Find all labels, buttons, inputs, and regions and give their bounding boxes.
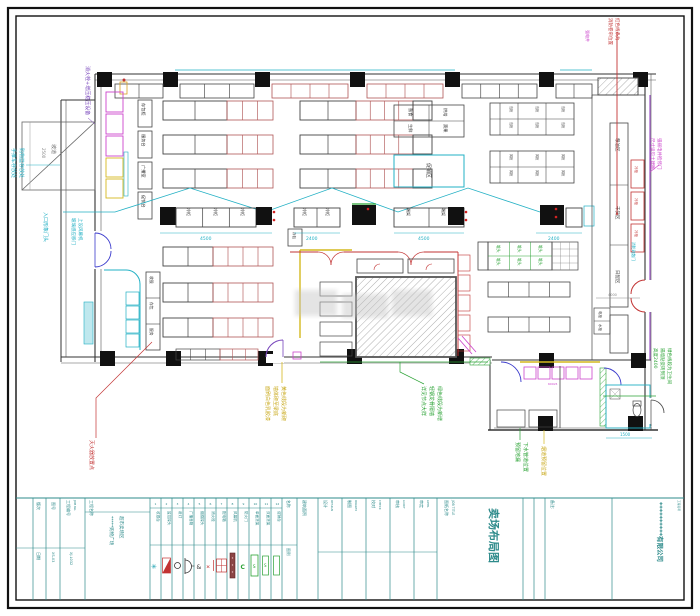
legend-headers-2: 射灯 [178, 511, 183, 519]
tb-sign-audit-en: AUDIT [402, 500, 406, 509]
island-label: 风柜 [535, 154, 540, 161]
utility-label: 水柜 [598, 324, 603, 332]
door-gap [649, 398, 657, 424]
tb-sign-drawn-en: DRAWN [354, 500, 358, 511]
column [97, 72, 112, 87]
door-gap [266, 354, 284, 363]
annotation-entry: 入口形象门头 [42, 212, 49, 242]
legend-symbol-star: ✳ [151, 563, 157, 571]
tb-sign-check-en: CHECK [378, 500, 382, 510]
freezer-end [256, 207, 272, 225]
tb-field-notes-sym: 图例 [286, 548, 291, 556]
island-label: 风柜 [509, 170, 514, 177]
annotation-wc-1: 绿色线段为卫生间 [666, 348, 673, 384]
dim-text: 4000 [608, 293, 617, 297]
legend-symbol-bar-dot [232, 557, 233, 558]
tb-field-jobno-en: JOB No. [73, 499, 77, 511]
annotation-green-1: 绿色线段为新增 [436, 386, 443, 421]
wall-cooler-label: 冷柜 [634, 198, 639, 206]
annotation-green-3: 详见节点大样 [420, 386, 427, 416]
annotation-shaft-2: 尺寸详见土建图 [649, 138, 656, 170]
freezer-label: 端架 [441, 208, 447, 216]
island-label: 风柜 [561, 170, 566, 177]
freezer-label: 端架 [406, 208, 412, 216]
pallet-label: 堆头 [496, 245, 501, 253]
tb-remark-label: 备注: [550, 500, 556, 509]
service-box-label: 促销台 [140, 195, 147, 208]
watermark-blob [295, 290, 337, 316]
door-gap [91, 231, 104, 269]
dim-text: 2400 [548, 236, 560, 242]
legend-symbol-c: C [241, 564, 246, 571]
tb-company: **********有限公司 [656, 502, 665, 562]
legend-headers-5: 消火栓 [211, 511, 216, 522]
watermark-blob [342, 294, 388, 318]
annotation-shaft-1: 强弱电井检修门 [656, 138, 663, 170]
corridor-shelf-label: 日配区 [614, 270, 620, 284]
tb-field-dwgno: 图号 [51, 502, 57, 510]
annotation-yellow-3: 面刷白色乳胶漆 [264, 386, 271, 421]
freezer-label: 冷柜 [240, 208, 246, 216]
legend-index-0: 1 [155, 502, 157, 506]
island-label: 岛柜 [561, 106, 566, 113]
island-label: 风柜 [561, 154, 566, 161]
freezer-label: 冷柜 [302, 208, 308, 216]
island-label: 岛柜 [535, 106, 540, 113]
floor-plan-canvas: 坡道2500存包柜服务台广播室促销台冷柜冷柜冷柜冷柜冷柜端架端架存包450024… [0, 0, 700, 616]
annotation-shutter-2: 消防卷帘位置 [607, 18, 614, 45]
legend-symbol-bar-dot [232, 564, 233, 565]
freezer-end [448, 207, 464, 225]
legend-index-11: 12 [276, 502, 280, 506]
tb-company-tag: 工程名称 [677, 500, 681, 511]
column [628, 416, 643, 431]
tb-value-project-1: *****购物广场 [108, 516, 115, 546]
column [255, 72, 270, 87]
annotation-green-2: 轻钢龙骨隔墙 [428, 386, 435, 416]
utility-label: 电柜 [598, 311, 603, 319]
legend-index-1: 2 [166, 502, 168, 506]
tb-field-notes-name: 名称 [286, 500, 291, 508]
freezer-black [352, 205, 376, 225]
legend-symbol-bar-dot [232, 571, 233, 572]
checkout-label: 存包 [149, 302, 154, 310]
freezer-label: 冷柜 [186, 208, 192, 216]
promo-zone-label: 促销区 [425, 163, 432, 178]
column [166, 351, 181, 366]
legend-index-5: 6 [210, 502, 212, 506]
legend-symbol-x: ✕ [206, 565, 210, 571]
column [538, 416, 553, 431]
door-gap [642, 280, 653, 312]
tb-jobtitle-en: JOB TITLE [451, 499, 455, 515]
power-dot [555, 208, 558, 211]
tb-sign-design: 设计 [323, 500, 329, 508]
legend-headers-10: 双面货架 [266, 511, 271, 526]
annotation-hydrant: 消火栓+增压稳压设备 [84, 66, 91, 115]
power-dot [273, 211, 276, 214]
tb-value-project-2: 超市卖场区 [118, 516, 125, 539]
legend-index-9: 10 [254, 502, 258, 506]
freezer-label: 冷柜 [325, 208, 331, 216]
island-label: 岛柜 [535, 122, 540, 129]
fresh-label: 烘焙 [442, 108, 449, 116]
rolling-shutter-hatch [598, 78, 638, 95]
pallet-label: 堆头 [517, 258, 522, 266]
legend-headers-1: 监控探头 [167, 511, 172, 526]
power-dot [367, 208, 370, 211]
freezer-label: 冷柜 [213, 208, 219, 216]
island-label: 岛柜 [509, 122, 514, 129]
checkout-label: 服务 [149, 328, 154, 336]
tb-sign-appr: 审定 [419, 500, 425, 508]
legend-index-10: 11 [265, 502, 269, 506]
ramp-dim: 2500 [41, 148, 46, 159]
tb-sign-drawn: 制图 [347, 500, 353, 508]
annotation-shutter-1: 红色线条为 [614, 18, 621, 41]
tb-field-area: 建筑面积 [302, 500, 308, 516]
annotation-fire-exit: 消防疏散门 [631, 242, 636, 261]
tb-jobtitle-label: 图纸名称 [444, 500, 450, 516]
tb-sign-design-en: DESIGN [330, 500, 334, 511]
dim-text: 4500 [418, 236, 430, 242]
legend-headers-8: 防火门 [244, 511, 249, 522]
power-dot [465, 219, 468, 222]
annotation-power-shaft: 强电井 [585, 30, 591, 42]
fresh-label: 生鲜 [407, 124, 414, 133]
dim-text: 1500 [620, 432, 631, 437]
wardrobe-dim: 600x5 [548, 382, 558, 386]
annotation-drain-1: 下水管道位置 [522, 442, 529, 472]
legend-headers-7: 风幕机 [233, 511, 238, 522]
alarm-dot [123, 79, 126, 82]
column [539, 353, 554, 368]
island-label: 风柜 [509, 154, 514, 161]
pallet-label: 堆头 [538, 245, 543, 253]
corridor-shelf-label: 干货区 [614, 206, 621, 220]
fresh-label: 蔬果 [442, 124, 449, 133]
power-dot [465, 211, 468, 214]
green-wall-hatch [600, 368, 606, 426]
legend-index-8: 9 [243, 502, 245, 506]
freezer-end [160, 207, 176, 225]
annotation-basket: 购物篮存放处 [18, 148, 25, 178]
annotation-door-2: 上设风幕机 [77, 218, 84, 241]
pallet-label: 堆头 [517, 245, 522, 253]
island-label: 风柜 [535, 170, 540, 177]
tb-sign-appr-en: APPR. [426, 500, 430, 508]
green-wall-hatch [470, 358, 490, 365]
tb-field-project: 工程名称 [89, 500, 95, 516]
annotation-extinguisher: 灭火器放置点 [88, 440, 95, 470]
annotation-door-1: 玻璃感应移门 [70, 218, 77, 245]
tb-field-jobno: 工程编号 [66, 500, 72, 516]
tb-field-date: 日期 [36, 552, 42, 560]
watermark-blob [392, 290, 432, 316]
annotation-drain-2: 预留地漏 [514, 442, 521, 462]
wall-cooler-label: 冷柜 [634, 230, 639, 238]
column [350, 72, 365, 87]
service-box-label: 存包柜 [140, 103, 147, 116]
corridor-shelf-label: 粮油区 [614, 138, 621, 152]
legend-headers-4: 烟感探头 [200, 511, 205, 526]
legend-symbol-amp: & [197, 564, 202, 571]
ramp-label: 坡道 [50, 144, 57, 154]
legend-symbol-shelf1-s: S [253, 564, 256, 570]
legend-index-6: 7 [221, 502, 223, 506]
cyan-fixture [84, 302, 93, 344]
column [445, 72, 460, 87]
legend-headers-11: 促销台 [277, 511, 282, 522]
pallet-label: 堆头 [538, 258, 543, 266]
service-box-label: 广播室 [140, 165, 147, 178]
freezer-black [540, 205, 564, 225]
power-dot [273, 219, 276, 222]
dim-text: 4500 [200, 236, 212, 242]
annotation-cart: 手推车存放处 [10, 148, 17, 178]
fire-shutter-end [616, 213, 618, 215]
annotation-yellow-1: 黄色线段为新砌 [280, 386, 287, 421]
legend-headers-6: 配电箱 [222, 511, 227, 522]
annotation-flue: 烟道预留位置 [540, 446, 547, 476]
legend-index-7: 8 [232, 502, 234, 506]
tb-sign-check: 校对 [371, 500, 377, 508]
annotation-wc-3: 高度2400 [652, 348, 659, 369]
island-label: 岛柜 [509, 106, 514, 113]
tb-sign-audit: 审核 [395, 500, 401, 508]
column [631, 353, 646, 368]
legend-headers-9: 单面货架 [255, 511, 260, 526]
annotation-wc-2: 隔墙贴瓷砖到顶 [659, 348, 666, 380]
annotation-yellow-2: 墙体砌至梁底 [272, 386, 279, 416]
tb-field-rev: 版次 [36, 502, 42, 510]
column [100, 351, 115, 366]
island-label: 岛柜 [561, 122, 566, 129]
checkout-label: 收银 [149, 276, 154, 284]
tb-value-dwgno: XS-03 [51, 552, 55, 562]
fresh-label: 熟食 [407, 108, 414, 117]
column [163, 72, 178, 87]
cad-sheet: 卖场布局图 坡道2500存包柜服务台广播室促销台冷柜冷柜冷柜冷柜冷柜端架端架存包… [0, 0, 700, 616]
service-box-label: 服务台 [140, 134, 147, 147]
legend-headers-3: 广播音箱 [189, 511, 194, 526]
legend-index-3: 4 [188, 502, 190, 506]
legend-index-4: 5 [199, 502, 201, 506]
legend-index-2: 3 [177, 502, 179, 506]
power-dot [555, 216, 558, 219]
pallet-label: 堆头 [496, 258, 501, 266]
column [539, 72, 554, 87]
dim-text: 2400 [306, 236, 318, 242]
legend-headers-0: 收银台 [156, 511, 161, 522]
tb-sheet-title: 卖场布局图 [487, 508, 501, 563]
tb-value-jobno: XJ-L032 [69, 552, 73, 565]
wall-cooler-label: 冷柜 [634, 166, 639, 174]
